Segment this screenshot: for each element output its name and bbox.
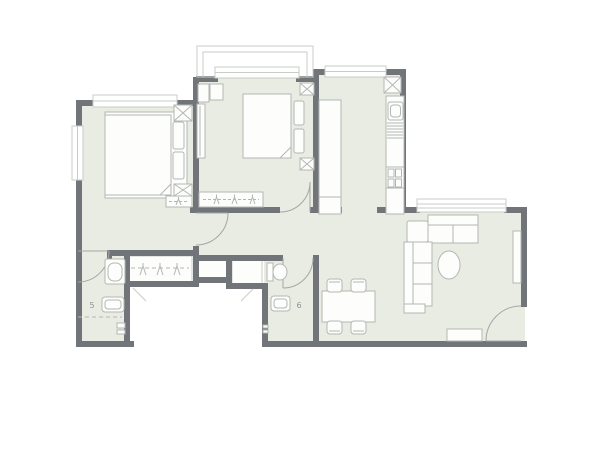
window-kitchen-top — [325, 66, 386, 77]
floor-plan-drawing: 5 6 — [0, 0, 600, 461]
nightstand-top — [300, 83, 314, 95]
washbasin-bowl — [105, 300, 121, 309]
window-living-top — [417, 199, 506, 212]
chair-icon — [327, 279, 342, 292]
doormat-icon — [447, 329, 482, 341]
sofa-armrest — [407, 221, 428, 242]
pillow-icon — [294, 129, 304, 153]
sink-basin — [391, 105, 401, 117]
window-bedroom-left-side — [72, 126, 83, 180]
fixture-label-6: 6 — [296, 301, 301, 310]
burner — [396, 169, 402, 177]
wall — [124, 281, 198, 287]
washbasin-bowl — [274, 299, 287, 308]
sofa-seat — [413, 242, 432, 306]
wardrobe-icon — [210, 84, 223, 100]
pillow-icon — [294, 101, 304, 125]
wardrobe-corridor-box — [128, 256, 192, 282]
pillow-icon — [173, 122, 184, 149]
chair-icon — [351, 279, 366, 292]
wall — [313, 255, 319, 347]
nightstand-bottom — [174, 184, 192, 196]
dining-table-icon — [322, 291, 375, 322]
sofa-armrest — [404, 304, 425, 313]
toilet-tank — [267, 263, 273, 281]
wardrobe-bedroom-middle — [199, 192, 263, 207]
wall — [262, 341, 527, 347]
fixture-mark — [117, 330, 125, 334]
fixture-mark — [263, 330, 268, 333]
wall — [76, 100, 82, 128]
hallway-floor — [196, 207, 318, 261]
chair-icon — [327, 321, 342, 334]
window-icon — [417, 199, 506, 212]
wall — [521, 207, 527, 307]
wall — [107, 250, 196, 256]
toilet-icon — [273, 264, 287, 280]
wall — [193, 255, 283, 261]
kitchen-counter-icon — [319, 100, 341, 197]
floor-plan-canvas: 5 6 — [0, 0, 600, 461]
closet-strip — [197, 104, 205, 158]
fixture-mark — [263, 325, 268, 328]
wall — [76, 178, 82, 347]
toilet-bowl — [108, 263, 122, 281]
burner — [388, 169, 394, 177]
pillow-icon — [173, 152, 184, 179]
wall — [190, 207, 280, 213]
wall — [262, 283, 268, 347]
wardrobe-icon — [198, 84, 209, 102]
kitchen-cabinet — [319, 197, 341, 214]
wardrobe-bedroom-left — [166, 196, 192, 207]
bed-duvet — [105, 115, 171, 195]
burner — [388, 179, 394, 187]
nightstand-top — [174, 105, 192, 121]
bed-duvet — [243, 94, 291, 158]
shower-box — [232, 257, 262, 284]
wall — [226, 283, 268, 289]
coffee-table-icon — [438, 251, 460, 279]
chair-icon — [351, 321, 366, 334]
nightstand-bottom — [300, 158, 314, 170]
burner — [396, 179, 402, 187]
fixture-mark — [117, 323, 125, 328]
sofa-back — [404, 242, 413, 306]
fixture-label-5: 5 — [89, 301, 94, 310]
tv-bench-icon — [513, 231, 521, 283]
window-bedroom-left-top — [93, 95, 177, 107]
sofa-back — [428, 215, 478, 225]
